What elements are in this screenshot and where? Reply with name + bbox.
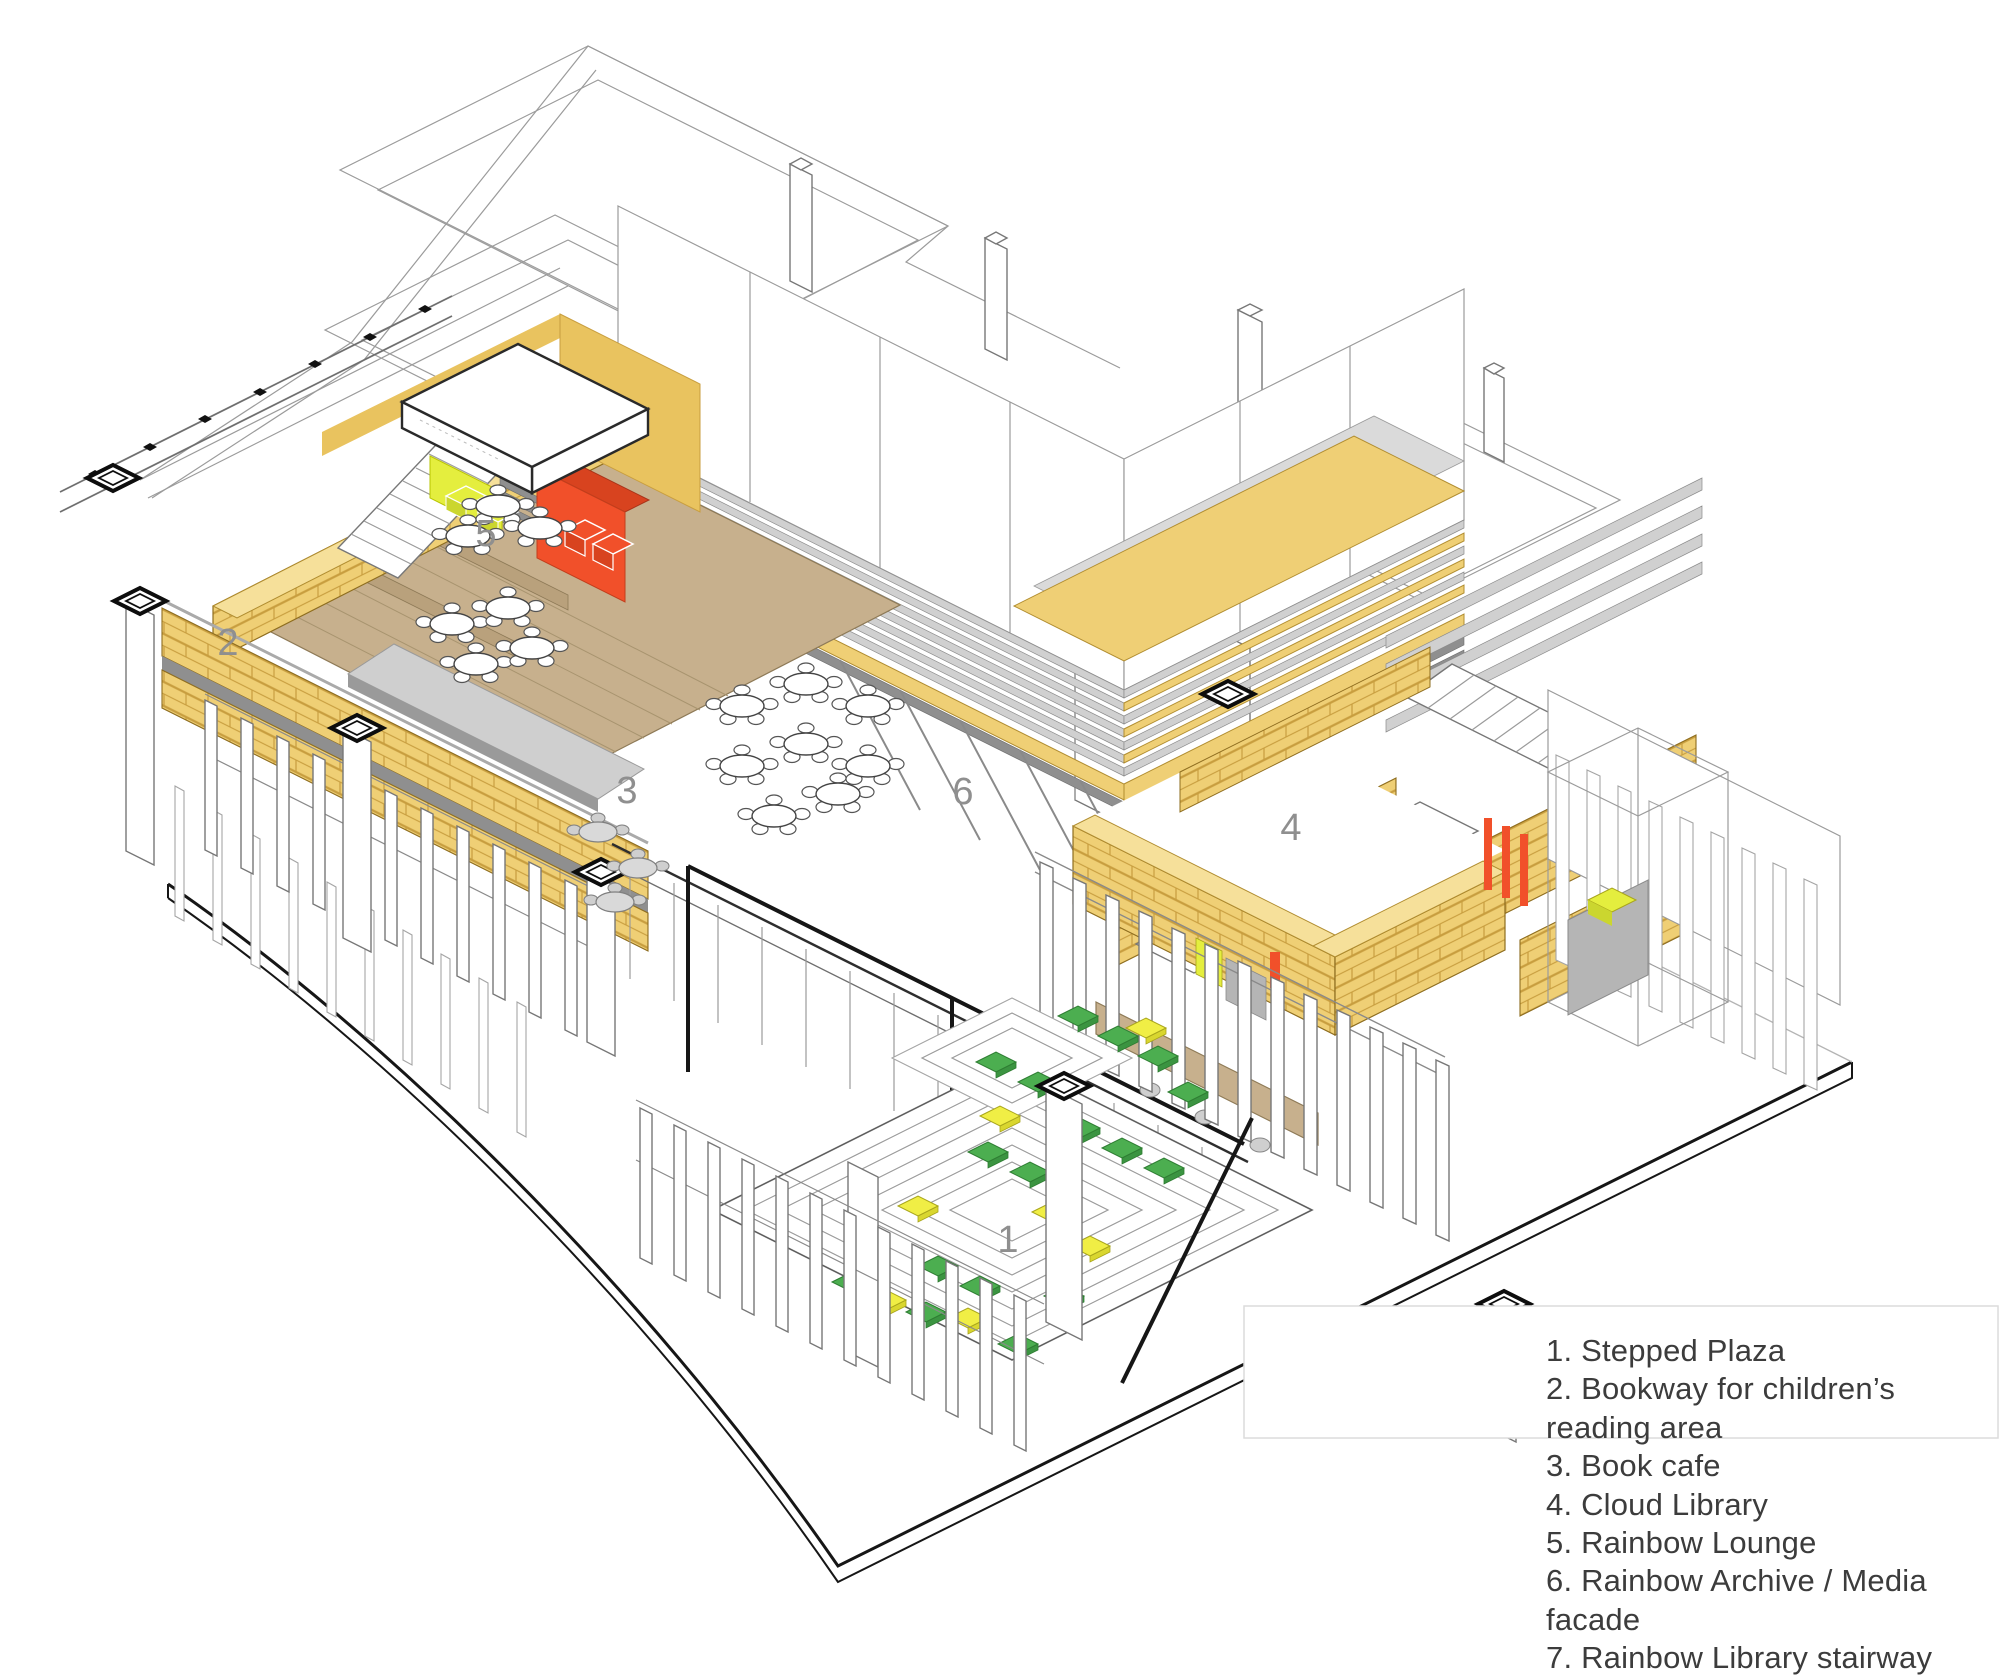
callout-5: 5 [475, 513, 496, 555]
callout-4: 4 [1280, 807, 1301, 849]
legend: 1. Stepped Plaza 2. Bookway for children… [1546, 1332, 1986, 1678]
legend-item-6: 6. Rainbow Archive / Media facade [1546, 1562, 1986, 1639]
callout-1: 1 [997, 1219, 1018, 1261]
callout-2: 2 [217, 622, 238, 664]
legend-item-4: 4. Cloud Library [1546, 1486, 1986, 1524]
legend-item-1: 1. Stepped Plaza [1546, 1332, 1986, 1370]
legend-item-2: 2. Bookway for children’s reading area [1546, 1370, 1986, 1447]
legend-item-5: 5. Rainbow Lounge [1546, 1524, 1986, 1562]
legend-item-7: 7. Rainbow Library stairway [1546, 1639, 1986, 1677]
legend-list: 1. Stepped Plaza 2. Bookway for children… [1546, 1332, 1986, 1678]
callout-3: 3 [616, 770, 637, 812]
legend-item-3: 3. Book cafe [1546, 1447, 1986, 1485]
axonometric-diagram-page: 1 2 3 4 5 6 1. Stepped Plaza 2. Bookway … [0, 0, 2000, 1616]
callout-6: 6 [952, 771, 973, 813]
